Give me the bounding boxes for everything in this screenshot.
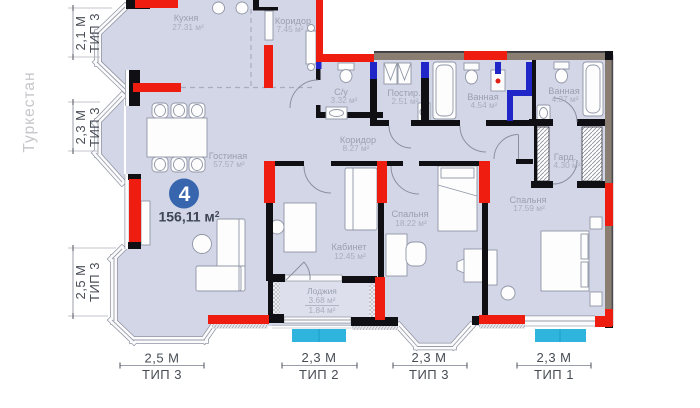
svg-text:12.45 м²: 12.45 м² (334, 251, 366, 261)
svg-text:17.59 м²: 17.59 м² (513, 203, 545, 213)
svg-text:2,3 М: 2,3 М (411, 350, 446, 365)
svg-text:4.30 м²: 4.30 м² (554, 160, 581, 170)
svg-text:Туркестан: Туркестан (21, 71, 38, 152)
svg-text:ТИП 3: ТИП 3 (142, 367, 182, 382)
svg-text:3.68 м²: 3.68 м² (309, 295, 336, 305)
svg-text:2.51 м²: 2.51 м² (392, 96, 419, 106)
svg-text:ТИП 3: ТИП 3 (409, 367, 449, 382)
svg-text:3.32 м²: 3.32 м² (331, 95, 358, 105)
svg-text:ТИП 3: ТИП 3 (87, 107, 102, 147)
svg-text:ТИП 1: ТИП 1 (534, 367, 574, 382)
svg-text:27.31 м²: 27.31 м² (172, 22, 204, 32)
svg-text:1.84 м²: 1.84 м² (309, 305, 336, 315)
svg-text:2,5 М: 2,5 М (73, 264, 88, 299)
svg-text:18.22 м²: 18.22 м² (395, 218, 427, 228)
svg-text:2,3 М: 2,3 М (301, 350, 336, 365)
svg-text:2,3 М: 2,3 М (536, 350, 571, 365)
svg-text:7.45 м²: 7.45 м² (277, 24, 304, 34)
svg-text:57.57 м²: 57.57 м² (213, 159, 245, 169)
svg-text:8.27 м²: 8.27 м² (343, 143, 370, 153)
svg-text:4.54 м²: 4.54 м² (471, 100, 498, 110)
svg-text:ТИП 3: ТИП 3 (87, 13, 102, 53)
svg-text:ТИП 3: ТИП 3 (87, 262, 102, 302)
svg-text:2,5 М: 2,5 М (144, 351, 179, 366)
svg-text:2,1 М: 2,1 М (73, 15, 88, 50)
svg-text:4: 4 (179, 183, 191, 206)
svg-text:ТИП 2: ТИП 2 (299, 367, 339, 382)
svg-text:2,3 М: 2,3 М (73, 109, 88, 144)
svg-text:4.37 м²: 4.37 м² (552, 94, 579, 104)
svg-text:156,11 м2: 156,11 м2 (158, 209, 219, 225)
